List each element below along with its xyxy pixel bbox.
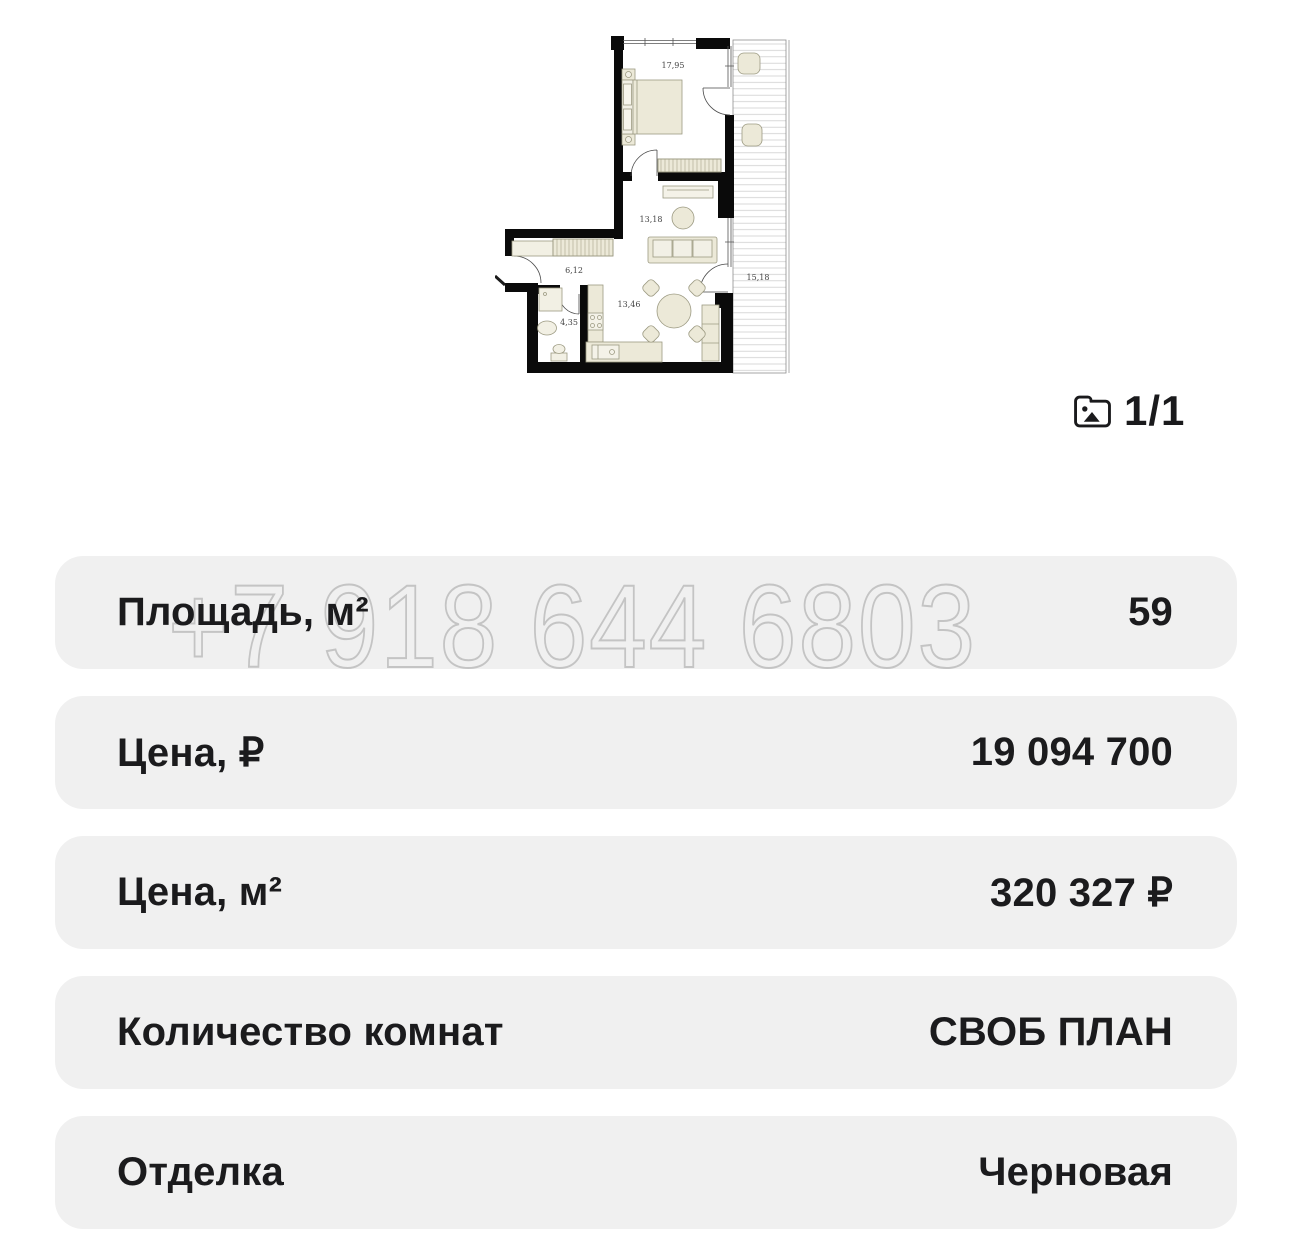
entrance-door-leaf [495, 276, 505, 285]
room-label-bathroom: 4,35 [560, 318, 578, 327]
detail-label: Количество комнат [117, 1010, 504, 1055]
detail-value: 19 094 700 [971, 730, 1173, 775]
detail-label: Цена, м² [117, 870, 282, 915]
detail-label: Площадь, м² [117, 590, 369, 635]
floor-plan-image[interactable]: 17,95 13,18 6,12 4,35 13,46 15,18 [495, 28, 793, 378]
detail-value: 320 327 ₽ [990, 870, 1173, 916]
listing-page: 17,95 13,18 6,12 4,35 13,46 15,18 1/1 +7… [0, 0, 1290, 1240]
room-label-kitchen: 13,46 [618, 300, 641, 309]
balcony-terrace [733, 40, 789, 373]
detail-label: Отделка [117, 1150, 284, 1195]
oven [592, 345, 619, 359]
detail-value: 59 [1128, 590, 1173, 635]
room-label-hall: 6,12 [565, 266, 583, 275]
walls [505, 36, 734, 373]
sink [538, 321, 557, 335]
detail-row-price: Цена, ₽ 19 094 700 [55, 696, 1237, 809]
detail-row-rooms: Количество комнат СВОБ ПЛАН [55, 976, 1237, 1089]
room-label-balcony: 15,18 [747, 273, 770, 282]
shower [539, 288, 562, 311]
hall-shelf [512, 241, 553, 256]
room-label-bedroom: 17,95 [662, 61, 685, 70]
balcony-chair [742, 124, 762, 146]
room-label-living: 13,18 [640, 215, 663, 224]
gallery-counter: 1/1 [1124, 390, 1185, 432]
balcony-chair [738, 53, 760, 74]
detail-row-price-per-m2: Цена, м² 320 327 ₽ [55, 836, 1237, 949]
detail-value: СВОБ ПЛАН [929, 1010, 1173, 1055]
detail-label: Цена, ₽ [117, 730, 264, 776]
coffee-table [672, 207, 694, 229]
gallery-badge[interactable]: 1/1 [1071, 390, 1185, 432]
bed [633, 80, 682, 134]
detail-value: Черновая [978, 1150, 1173, 1195]
windows [623, 38, 734, 267]
details-list: Площадь, м² 59 Цена, ₽ 19 094 700 Цена, … [55, 556, 1237, 1256]
detail-row-area: Площадь, м² 59 [55, 556, 1237, 669]
dining-table [657, 294, 691, 328]
tv-bench [663, 186, 713, 198]
toilet [551, 353, 567, 361]
detail-row-finishing: Отделка Черновая [55, 1116, 1237, 1229]
photo-icon [1071, 393, 1113, 430]
